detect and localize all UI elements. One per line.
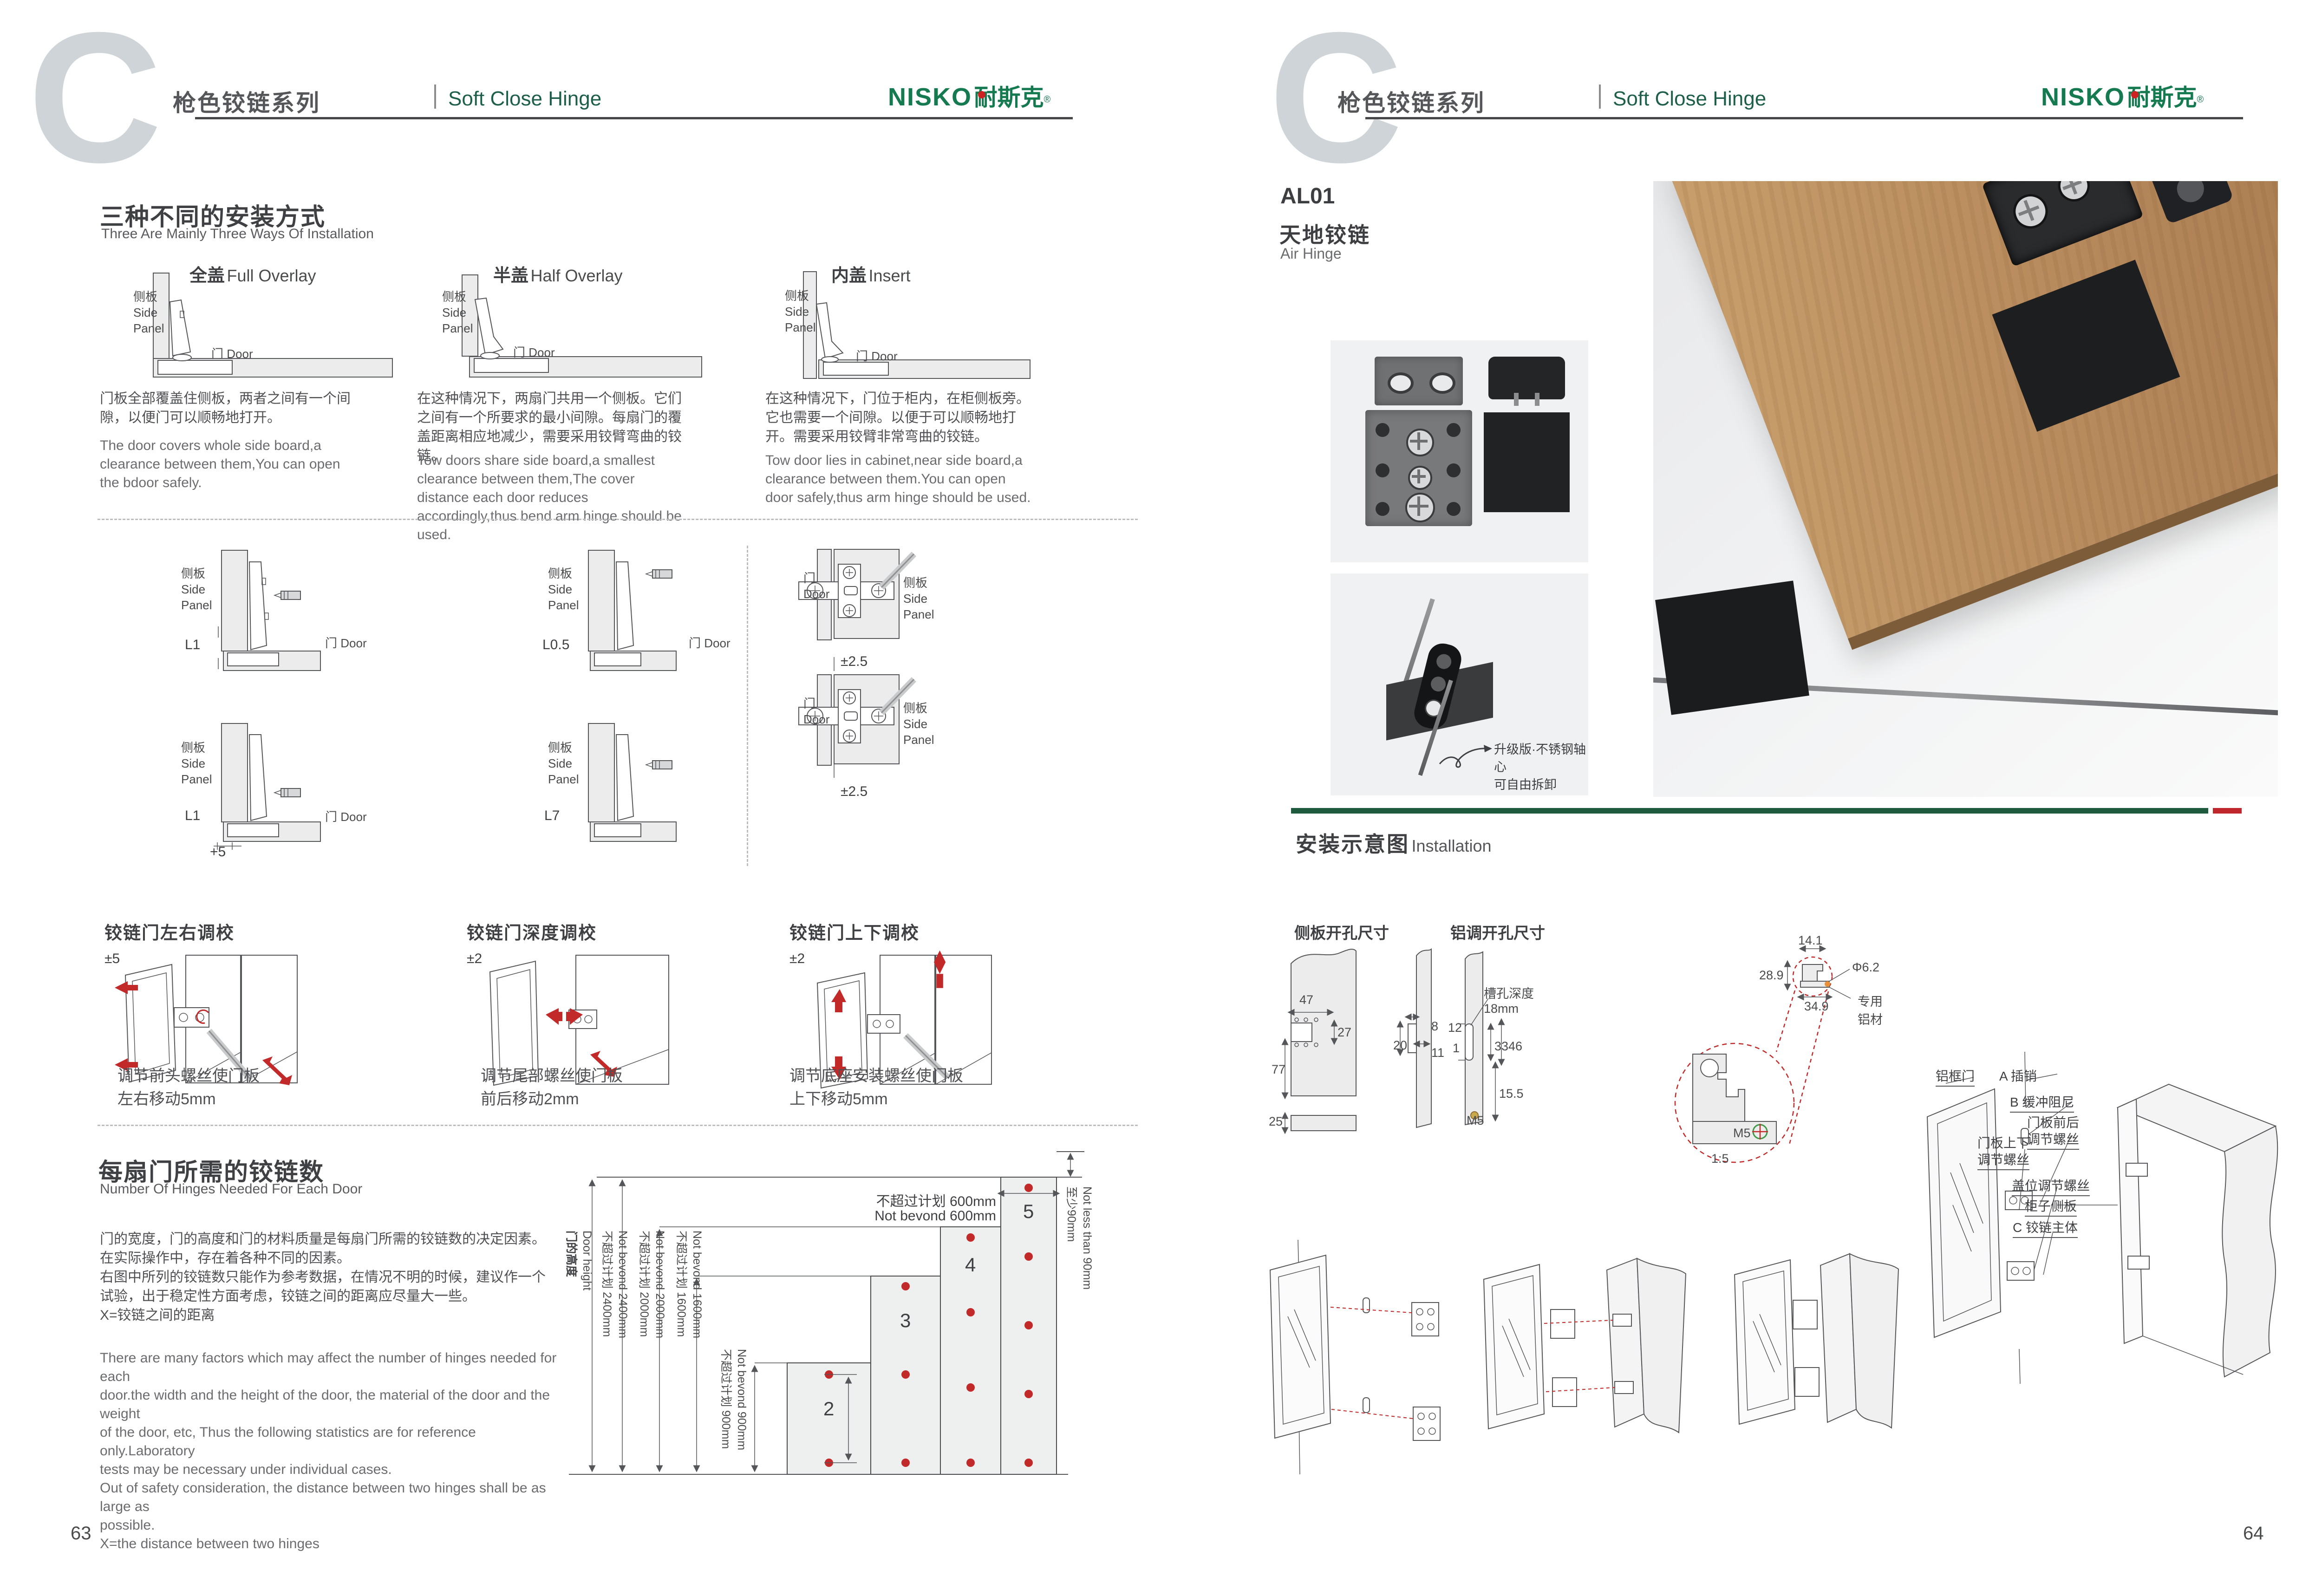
vlabel-en: Not bevond 2000mm — [653, 1231, 667, 1338]
dim-12: 12 — [1448, 1021, 1462, 1035]
product-photo-main — [1653, 181, 2278, 797]
door-en: Door — [340, 636, 366, 650]
product-code: AL01 — [1280, 183, 1335, 209]
alu-material-label: 专用 铝材 — [1858, 991, 1883, 1028]
chart-count-4: 4 — [965, 1254, 976, 1276]
wood-board-image — [1665, 181, 2278, 650]
chart-min90-label: 至少90mm Not less than 90mm — [1064, 1186, 1164, 1290]
label-up-down-1: 门板上下 — [1977, 1133, 2029, 1152]
black-pad-image — [1992, 260, 2180, 431]
pin — [1535, 393, 1539, 406]
hinges-title-en: Number Of Hinges Needed For Each Door — [100, 1181, 362, 1197]
hinge-cover-image — [1488, 357, 1565, 399]
door-label: 门 Door — [803, 570, 829, 602]
section-bar-green — [1291, 808, 2208, 814]
door-label: 门 Door — [211, 346, 253, 362]
dim-l1: L1 — [185, 637, 200, 653]
page-title-en: Soft Close Hinge — [448, 87, 601, 111]
dim-155: 15.5 — [1499, 1087, 1524, 1101]
cn-line: X=铰链之间的距离 — [100, 1306, 564, 1325]
phillips-screw — [2054, 181, 2094, 206]
side-panel-cn: 侧板 — [548, 740, 579, 756]
side-panel-en1: Side — [903, 591, 934, 606]
dim-20: 20 — [1393, 1038, 1407, 1053]
exploded-view-drawing — [1918, 1052, 2285, 1386]
side-panel-en1: Side — [133, 305, 164, 320]
hinge-flap-image — [1375, 357, 1463, 405]
label-hinge-body-c: C 铰链主体 — [2013, 1218, 2078, 1238]
vlabel-cn: 门的高度 — [564, 1231, 578, 1290]
brand-logo: NISKO 耐斯克® — [2041, 79, 2204, 112]
caption-line2: 前后移动2mm — [481, 1088, 623, 1111]
adjust-caption: 调节前头螺丝使门板 左右移动5mm — [117, 1064, 260, 1111]
vlabel-cn: 不超过计划 900mm — [719, 1349, 733, 1450]
side-panel-label: 侧板 Side Panel — [181, 566, 212, 613]
door-cn: 门 — [211, 347, 223, 361]
screw-hole — [1376, 463, 1389, 477]
door-label: 门 Door — [856, 348, 898, 364]
cn-line: 在实际操作中，存在着各种不同的因素。 — [100, 1249, 564, 1268]
alu-drawing-title: 铝调开孔尺寸 — [1450, 920, 1545, 943]
detail-m5: M5 — [1733, 1126, 1751, 1140]
caption-line2: 左右移动5mm — [117, 1088, 260, 1111]
dim-l05: L0.5 — [542, 637, 569, 653]
installation-title-en: Installation — [1411, 836, 1491, 855]
chart-width-label-en: Not bevond 600mm — [801, 1208, 996, 1224]
screw-hole — [1447, 502, 1461, 516]
page-title-en: Soft Close Hinge — [1613, 87, 1766, 111]
adjust-title-depth: 铰链门深度调校 — [467, 919, 597, 944]
clearance-diagram-l05 — [571, 536, 724, 676]
label-cover-adjust: 盖位调节螺丝 — [2012, 1176, 2090, 1196]
separator-dashed — [98, 1125, 1138, 1126]
cn-line: 右图中所列的铰链数只能作为参考数据，在情况不明的时候，建议作一个 — [100, 1268, 564, 1287]
clearance-diagram-l1-plus5 — [204, 710, 358, 850]
dim-141: 14.1 — [1798, 933, 1823, 948]
page-number-left: 63 — [71, 1523, 91, 1544]
alu-mat-line2: 铝材 — [1858, 1010, 1883, 1028]
side-panel-label: 侧板 Side Panel — [181, 740, 212, 787]
brand-logo-en: NISKO — [888, 83, 972, 111]
caption-line1: 调节尾部螺丝使门板 — [481, 1064, 623, 1088]
dim-m5: M5 — [1467, 1114, 1484, 1128]
label-pin-a: A 插销 — [1999, 1066, 2037, 1085]
alu-mat-line1: 专用 — [1858, 991, 1883, 1010]
page-title-cn: 枪色铰链系列 — [1337, 85, 1485, 118]
screw-bit-icon — [646, 761, 672, 769]
door-cn: 门 — [803, 570, 829, 586]
door-en: Door — [340, 810, 366, 824]
brand-logo-cn: 耐斯克 — [2127, 85, 2197, 111]
screw-bit-icon — [274, 591, 300, 599]
side-panel-cn: 侧板 — [181, 566, 212, 581]
hinge-hole — [1429, 372, 1455, 394]
vlabel-en: Not bevond 900mm — [735, 1349, 749, 1450]
side-panel-cn: 侧板 — [785, 288, 816, 304]
slot-note-line1: 槽孔深度 — [1484, 984, 1534, 1002]
en-line: Out of safety consideration, the distanc… — [100, 1479, 564, 1516]
side-panel-cn: 侧板 — [442, 289, 473, 305]
door-cn: 门 — [856, 349, 868, 363]
side-panel-en2: Panel — [442, 320, 473, 336]
side-panel-label: 侧板 Side Panel — [903, 700, 934, 748]
dim-pm25: ±2.5 — [841, 784, 867, 800]
adjust-caption: 调节尾部螺丝使门板 前后移动2mm — [481, 1064, 623, 1111]
door-cn: 门 — [689, 636, 701, 650]
hinge-hole — [1388, 372, 1414, 394]
side-panel-label: 侧板 Side Panel — [548, 566, 579, 613]
dim-33: 33 — [1494, 1039, 1508, 1054]
dim-l7: L7 — [544, 808, 560, 824]
installation-title-cn: 安装示意图 — [1296, 832, 1409, 856]
side-panel-en2: Panel — [181, 771, 212, 787]
title-divider — [434, 85, 436, 109]
hinge-assembly-image — [1982, 181, 2143, 267]
vlabel-cn: 不超过计划 2400mm — [600, 1231, 614, 1338]
brand-logo-cn: 耐斯克 — [974, 85, 1044, 111]
cover-plate-image — [1484, 412, 1570, 512]
dim-11: 11 — [1431, 1046, 1444, 1060]
side-panel-en2: Panel — [903, 606, 934, 622]
vlabel-en: Not bevond 2400mm — [616, 1231, 630, 1338]
page-title-cn: 枪色铰链系列 — [173, 85, 320, 118]
brand-logo: NISKO 耐斯克® — [888, 79, 1050, 112]
method-desc-cn: 在这种情况下，门位于柜内，在柜侧板旁。它也需要一个间隙。以便于可以顺畅地打开。需… — [765, 389, 1030, 446]
dim-25: 25 — [1269, 1114, 1283, 1129]
dim-349: 34.9 — [1804, 999, 1829, 1014]
door-cn: 门 — [325, 636, 337, 650]
annotation-line1: 升级版·不锈钢轴心 — [1494, 741, 1588, 776]
header-rule — [195, 117, 1073, 119]
label-up-down-2: 调节螺丝 — [1977, 1150, 2029, 1170]
chapter-letter: C — [28, 5, 162, 190]
side-panel-en1: Side — [181, 756, 212, 771]
door-label: 门 Door — [325, 635, 367, 651]
side-panel-label: 侧板 Side Panel — [785, 288, 816, 335]
product-photo-parts — [1331, 340, 1588, 562]
door-en: Door — [704, 636, 730, 650]
dim-47: 47 — [1299, 993, 1313, 1007]
screw-hole — [1447, 463, 1461, 477]
screw-slot — [1409, 505, 1428, 508]
side-panel-en1: Side — [181, 581, 212, 597]
screw-hole — [1376, 423, 1389, 437]
adjust-title-lr: 铰链门左右调校 — [104, 919, 235, 944]
method-desc-en: Tow doors share side board,a smallest cl… — [417, 451, 686, 544]
screw-bit-icon — [646, 570, 672, 578]
hinge-knuckle-image — [2126, 181, 2234, 224]
door-en: Door — [803, 586, 829, 602]
label-alu-door: 铝框门 — [1936, 1066, 1975, 1087]
vlabel-cn: 不超过计划 2000mm — [637, 1231, 651, 1338]
door-label: 门 Door — [803, 696, 829, 727]
full-overlay-diagram — [139, 260, 399, 381]
dim-8: 8 — [1431, 1019, 1438, 1034]
arm-hole — [1429, 675, 1448, 693]
en-line: X=the distance between two hinges — [100, 1535, 564, 1553]
en-line: of the door, etc, Thus the following sta… — [100, 1423, 564, 1460]
brand-reg-mark: ® — [1044, 95, 1050, 105]
vlabel-en: Not less than 90mm — [1080, 1186, 1094, 1290]
vlabel-en: Not bevond 1600mm — [690, 1231, 704, 1338]
dim-1: 1 — [1453, 1041, 1460, 1055]
screw-slot — [1412, 475, 1426, 478]
chart-h900-label: 不超过计划 900mm Not bevond 900mm — [719, 1349, 846, 1450]
hinge-icon — [867, 1015, 900, 1033]
section-bar-red — [2213, 808, 2242, 814]
alu-drawing — [1396, 943, 1549, 1138]
method-desc-en: The door covers whole side board,a clear… — [100, 436, 360, 492]
side-panel-en2: Panel — [548, 597, 579, 613]
en-line: There are many factors which may affect … — [100, 1349, 564, 1386]
cn-line: 试验，出于稳定性方面考虑，铰链之间的距离应尽量大一些。 — [100, 1287, 564, 1306]
adjust-title-ud: 铰链门上下调校 — [789, 919, 920, 944]
dim-77: 77 — [1272, 1062, 1285, 1077]
detail-scale: 1:5 — [1711, 1152, 1729, 1166]
adjust-caption: 调节底座安装螺丝使门板 上下移动5mm — [789, 1064, 963, 1111]
side-panel-en1: Side — [548, 756, 579, 771]
product-name-cn: 天地铰链 — [1279, 218, 1370, 249]
label-front-back-2: 调节螺丝 — [2027, 1129, 2079, 1150]
side-panel-en1: Side — [442, 305, 473, 320]
side-panel-drawing-title: 侧板开孔尺寸 — [1294, 920, 1389, 943]
door-cn: 门 — [325, 810, 337, 824]
install-title-en: Three Are Mainly Three Ways Of Installat… — [101, 226, 374, 242]
side-panel-label: 侧板 Side Panel — [903, 575, 934, 622]
caption-line1: 调节前头螺丝使门板 — [117, 1064, 260, 1088]
hinge-base-image — [1365, 410, 1472, 526]
separator-dashed-vertical — [747, 546, 748, 866]
separator-dashed — [98, 519, 1138, 520]
assembly-steps-drawing — [1265, 1214, 1944, 1530]
title-divider — [1599, 85, 1601, 109]
annotation-line2: 可自由拆卸 — [1494, 776, 1588, 794]
screw-bit-icon — [274, 788, 300, 797]
chart-count-3: 3 — [900, 1309, 911, 1332]
side-panel-label: 侧板 Side Panel — [442, 289, 473, 336]
door-en: Door — [528, 345, 554, 359]
dim-27: 27 — [1337, 1025, 1351, 1040]
cn-line: 门的宽度，门的高度和门的材料质量是每扇门所需的铰链数的决定因素。 — [100, 1230, 564, 1249]
en-line: door.the width and the height of the doo… — [100, 1386, 564, 1423]
label-front-back-1: 门板前后 — [2027, 1113, 2079, 1131]
catalog-spread: C 枪色铰链系列 Soft Close Hinge NISKO 耐斯克® 三种不… — [0, 0, 2322, 1596]
clearance-diagram-l1 — [204, 536, 358, 676]
side-panel-en2: Panel — [903, 732, 934, 748]
detail-drawing — [1665, 922, 1953, 1163]
caption-line2: 上下移动5mm — [789, 1088, 963, 1111]
side-panel-en1: Side — [785, 304, 816, 319]
screw-hole — [1376, 502, 1389, 516]
side-panel-en2: Panel — [181, 597, 212, 613]
dim-l1: L1 — [185, 808, 200, 824]
door-en: Door — [871, 349, 897, 363]
side-panel-label: 侧板 Side Panel — [548, 740, 579, 787]
en-line: tests may be necessary under individual … — [100, 1460, 564, 1479]
door-cn: 门 — [803, 696, 829, 711]
chart-width-label-cn: 不超过计划 600mm — [801, 1190, 996, 1210]
vlabel-en: Door height — [580, 1231, 594, 1290]
side-panel-en2: Panel — [785, 319, 816, 335]
dim-dia62: Φ6.2 — [1852, 960, 1879, 975]
door-cn: 门 — [513, 345, 525, 359]
pin — [1514, 393, 1519, 406]
half-overlay-diagram — [448, 260, 708, 381]
dim-46: 46 — [1508, 1039, 1522, 1054]
side-panel-en2: Panel — [548, 771, 579, 787]
door-en: Door — [227, 347, 253, 361]
phillips-screw — [1408, 466, 1432, 490]
label-cabinet-side: 柜子侧板 — [2025, 1196, 2077, 1217]
method-desc-en: Tow door lies in cabinet,near side board… — [765, 451, 1035, 507]
door-label: 门 Door — [325, 809, 367, 825]
phillips-screw — [1406, 429, 1434, 456]
side-panel-en2: Panel — [133, 320, 164, 336]
label-buffer-b: B 缓冲阻尼 — [2010, 1092, 2074, 1113]
dim-plus5: +5 — [210, 844, 226, 860]
side-panel-en1: Side — [548, 581, 579, 597]
logo-red-dot-icon — [2131, 91, 2139, 98]
method-desc-cn: 门板全部覆盖住侧板，两者之间有一个间隙，以便门可以顺畅地打开。 — [100, 389, 360, 427]
phillips-screw — [2009, 189, 2053, 234]
clearance-diagram-l7 — [571, 710, 724, 850]
slot-note-line2: 18mm — [1484, 1002, 1534, 1016]
chart-count-5: 5 — [1023, 1200, 1034, 1223]
product-name-en: Air Hinge — [1280, 245, 1342, 262]
side-panel-cn: 侧板 — [903, 575, 934, 591]
vlabel-cn: 至少90mm — [1064, 1186, 1078, 1290]
screw-slot — [1410, 440, 1428, 443]
door-label: 门 Door — [513, 345, 555, 360]
chart-h1600-label: 不超过计划 1600mm Not bevond 1600mm — [674, 1231, 802, 1338]
product-photo-axis: 升级版·不锈钢轴心 可自由拆卸 — [1331, 573, 1588, 795]
dim-289: 28.9 — [1759, 968, 1784, 983]
caption-line1: 调节底座安装螺丝使门板 — [789, 1064, 963, 1088]
slot-depth-note: 槽孔深度 18mm — [1484, 984, 1534, 1016]
hinges-paragraph-cn: 门的宽度，门的高度和门的材料质量是每扇门所需的铰链数的决定因素。 在实际操作中，… — [100, 1230, 564, 1325]
hinges-paragraph-en: There are many factors which may affect … — [100, 1349, 564, 1553]
phillips-screw — [1405, 493, 1435, 522]
side-panel-cn: 侧板 — [181, 740, 212, 756]
door-en: Door — [803, 711, 829, 727]
side-panel-label: 侧板 Side Panel — [133, 289, 164, 336]
side-panel-cn: 侧板 — [548, 566, 579, 581]
side-panel-cn: 侧板 — [903, 700, 934, 716]
page-number-right: 64 — [2243, 1523, 2264, 1544]
brand-logo-en: NISKO — [2041, 83, 2125, 111]
logo-red-dot-icon — [978, 91, 985, 98]
arm-hole — [1435, 652, 1453, 671]
header-rule — [1365, 117, 2243, 119]
brand-reg-mark: ® — [2197, 95, 2204, 105]
knuckle-hole — [2173, 181, 2208, 206]
black-plate-image — [1655, 580, 1809, 715]
screw-hole — [1447, 423, 1461, 437]
en-line: possible. — [100, 1516, 564, 1535]
side-panel-en1: Side — [903, 716, 934, 732]
vlabel-cn: 不超过计划 1600mm — [674, 1231, 688, 1338]
note-arrow-icon — [1437, 738, 1493, 771]
side-panel-cn: 侧板 — [133, 289, 164, 305]
installation-heading: 安装示意图 Installation — [1296, 827, 1492, 858]
door-label: 门 Door — [689, 635, 731, 651]
photo-annotation: 升级版·不锈钢轴心 可自由拆卸 — [1494, 741, 1588, 794]
dim-pm25: ±2.5 — [841, 654, 867, 670]
